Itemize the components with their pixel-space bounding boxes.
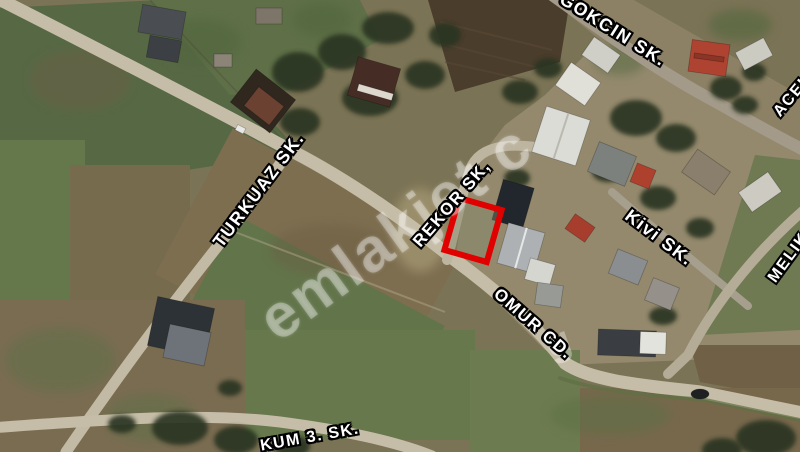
satellite-map-image: emlakjet c g GOKCIN SK. TURKUAZ SK. REKO… xyxy=(0,0,800,452)
